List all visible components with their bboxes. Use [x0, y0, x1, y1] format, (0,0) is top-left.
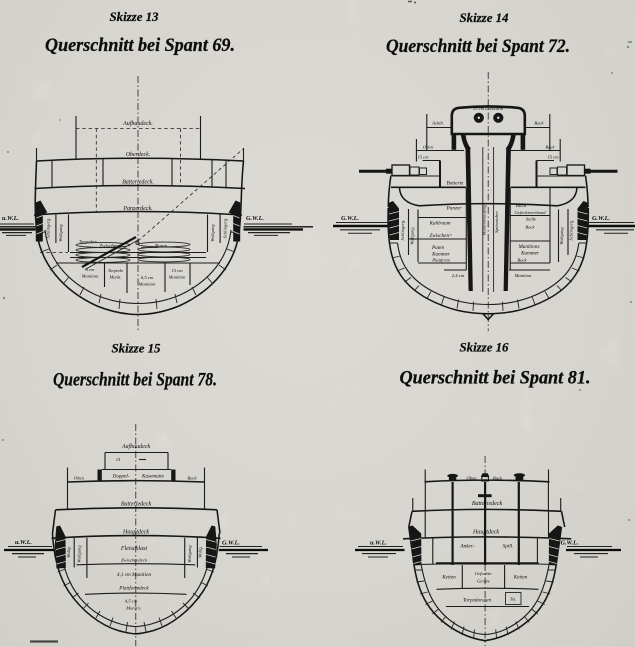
svg-text:Munition: Munition	[168, 275, 187, 280]
svg-text:Panzerdeck.: Panzerdeck.	[122, 206, 152, 212]
svg-text:Back: Back	[525, 225, 535, 230]
svg-text:Back: Back	[493, 476, 503, 481]
svg-text:Batteriedeck: Batteriedeck	[121, 502, 152, 508]
svg-text:Munition: Munition	[81, 274, 100, 279]
svg-text:Querschnitt bei Spant 69.: Querschnitt bei Spant 69.	[45, 35, 235, 56]
svg-text:Batterie: Batterie	[447, 181, 464, 187]
svg-text:Raum: Raum	[154, 244, 167, 250]
svg-text:Schlingerg.: Schlingerg.	[223, 218, 228, 239]
svg-text:u.W.L.: u.W.L.	[15, 539, 32, 546]
svg-text:15: 15	[116, 457, 121, 462]
svg-text:G.W.L.: G.W.L.	[222, 540, 240, 547]
svg-text:Wallgang: Wallgang	[210, 224, 215, 242]
svg-text:Kuhlraum: Kuhlraum	[428, 221, 450, 227]
svg-text:Back: Back	[516, 203, 527, 209]
svg-text:Aufbaudeck.: Aufbaudeck.	[122, 120, 153, 127]
svg-text:Wallgang: Wallgang	[58, 224, 63, 242]
svg-text:Wallg.: Wallg.	[198, 546, 203, 558]
svg-text:15 cm: 15 cm	[171, 268, 183, 273]
svg-text:G.W.L.: G.W.L.	[592, 215, 610, 222]
svg-text:u.W.L.: u.W.L.	[2, 215, 19, 222]
svg-text:15 cm Drehturm: 15 cm Drehturm	[473, 106, 504, 111]
svg-text:Wallgang: Wallgang	[409, 227, 414, 245]
svg-text:Munit'n.: Munit'n.	[125, 606, 141, 611]
svg-text:Querschnitt bei Spant 72.: Querschnitt bei Spant 72.	[386, 36, 570, 57]
svg-text:Back: Back	[545, 145, 555, 150]
svg-text:Kasematte: Kasematte	[141, 474, 165, 480]
svg-text:Gerate: Gerate	[477, 579, 490, 584]
svg-text:Oben: Oben	[423, 145, 434, 150]
svg-text:G.W.L.: G.W.L.	[246, 215, 264, 222]
svg-text:G.W.L.: G.W.L.	[341, 215, 359, 222]
svg-text:G.W.L.: G.W.L.	[561, 540, 579, 547]
svg-text:Hauptdeck: Hauptdeck	[472, 530, 499, 536]
svg-text:Skizze 13: Skizze 13	[110, 9, 159, 24]
svg-text:Querschnitt bei Spant 78.: Querschnitt bei Spant 78.	[53, 370, 217, 391]
svg-text:Ketten: Ketten	[513, 575, 528, 581]
svg-text:Skizze 15: Skizze 15	[112, 341, 161, 356]
svg-text:4 cm: 4 cm	[86, 267, 95, 272]
svg-text:Batteriedeck: Batteriedeck	[472, 501, 503, 507]
svg-text:Spill.: Spill.	[503, 544, 514, 550]
svg-text:Back: Back	[187, 476, 197, 481]
svg-text:Achtb.: Achtb.	[431, 121, 444, 126]
svg-text:u.W.L.: u.W.L.	[370, 540, 387, 547]
svg-text:Oben: Oben	[467, 476, 478, 481]
svg-text:15 cm: 15 cm	[547, 155, 559, 160]
svg-text:Wallg.: Wallg.	[66, 546, 71, 558]
svg-text:Wallgang: Wallgang	[187, 545, 192, 563]
svg-text:Wallgang: Wallgang	[77, 545, 82, 563]
svg-text:Plattformdeck: Plattformdeck	[118, 585, 149, 592]
svg-text:Aufbaudeck: Aufbaudeck	[121, 443, 151, 450]
svg-text:Zwischendeck: Zwischendeck	[121, 558, 148, 563]
svg-text:4,1 cm Munition: 4,1 cm Munition	[117, 571, 152, 578]
svg-text:Skizze 16: Skizze 16	[460, 340, 509, 355]
svg-text:Tst.: Tst.	[510, 597, 516, 602]
svg-text:Torpedo: Torpedo	[108, 268, 124, 273]
svg-text:Batteriedeck.: Batteriedeck.	[122, 180, 154, 186]
svg-text:Schlingerg.: Schlingerg.	[46, 218, 51, 239]
svg-text:Munition: Munition	[138, 282, 157, 287]
svg-text:Back: Back	[534, 121, 544, 126]
svg-text:Gefechtsverband: Gefechtsverband	[514, 210, 546, 215]
svg-text:Munitions: Munitions	[517, 244, 539, 250]
svg-text:Querschnitt bei Spant 81.: Querschnitt bei Spant 81.	[400, 368, 591, 389]
svg-text:Torpedoraum: Torpedoraum	[463, 598, 491, 604]
svg-text:Anker-: Anker-	[459, 544, 474, 550]
svg-text:Zwischen: Zwischen	[99, 244, 119, 250]
svg-text:Munit.: Munit.	[108, 275, 121, 280]
svg-text:Hauptdeck: Hauptdeck	[122, 530, 149, 536]
svg-text:15 cm: 15 cm	[417, 155, 429, 160]
svg-text:Skizze 14: Skizze 14	[460, 10, 509, 25]
svg-text:Panzer: Panzer	[446, 206, 463, 212]
svg-text:Speiserohre: Speiserohre	[494, 211, 499, 233]
svg-text:Puten: Puten	[431, 245, 445, 251]
svg-text:Doppel-: Doppel-	[112, 474, 130, 480]
svg-text:Zwischen=: Zwischen=	[429, 233, 452, 239]
svg-text:Schlingerg.: Schlingerg.	[400, 220, 405, 241]
svg-text:Gefechts-: Gefechts-	[475, 571, 493, 576]
svg-text:Munitionsaufzug: Munitionsaufzug	[481, 204, 486, 237]
svg-text:Torpedo=: Torpedo=	[79, 239, 97, 244]
svg-text:Schlingerg.: Schlingerg.	[568, 220, 573, 241]
svg-text:Wallgang: Wallgang	[559, 227, 564, 245]
svg-text:Fleischlast: Fleischlast	[120, 546, 148, 552]
svg-text:Plattform: Plattform	[431, 258, 450, 263]
svg-text:Ketten: Ketten	[441, 575, 456, 581]
svg-text:Stelle: Stelle	[526, 217, 536, 222]
svg-text:Oberdeck.: Oberdeck.	[126, 152, 151, 158]
svg-text:Oben: Oben	[74, 476, 85, 481]
svg-text:Kammer: Kammer	[520, 251, 540, 257]
svg-text:Munition: Munition	[514, 273, 533, 278]
svg-text:Back: Back	[517, 258, 527, 263]
